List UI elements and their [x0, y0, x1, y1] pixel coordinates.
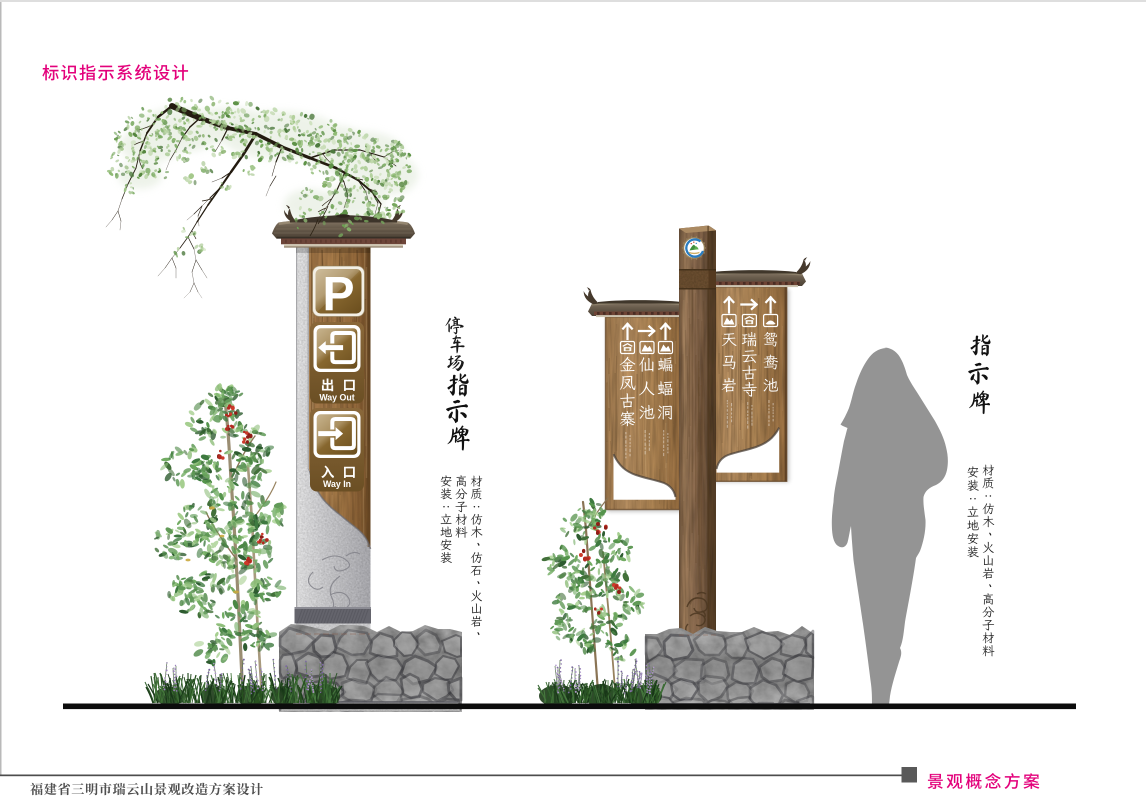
svg-text:P: P	[322, 268, 354, 321]
svg-text:Way In: Way In	[323, 479, 351, 489]
svg-text:Way Out: Way Out	[319, 393, 354, 403]
